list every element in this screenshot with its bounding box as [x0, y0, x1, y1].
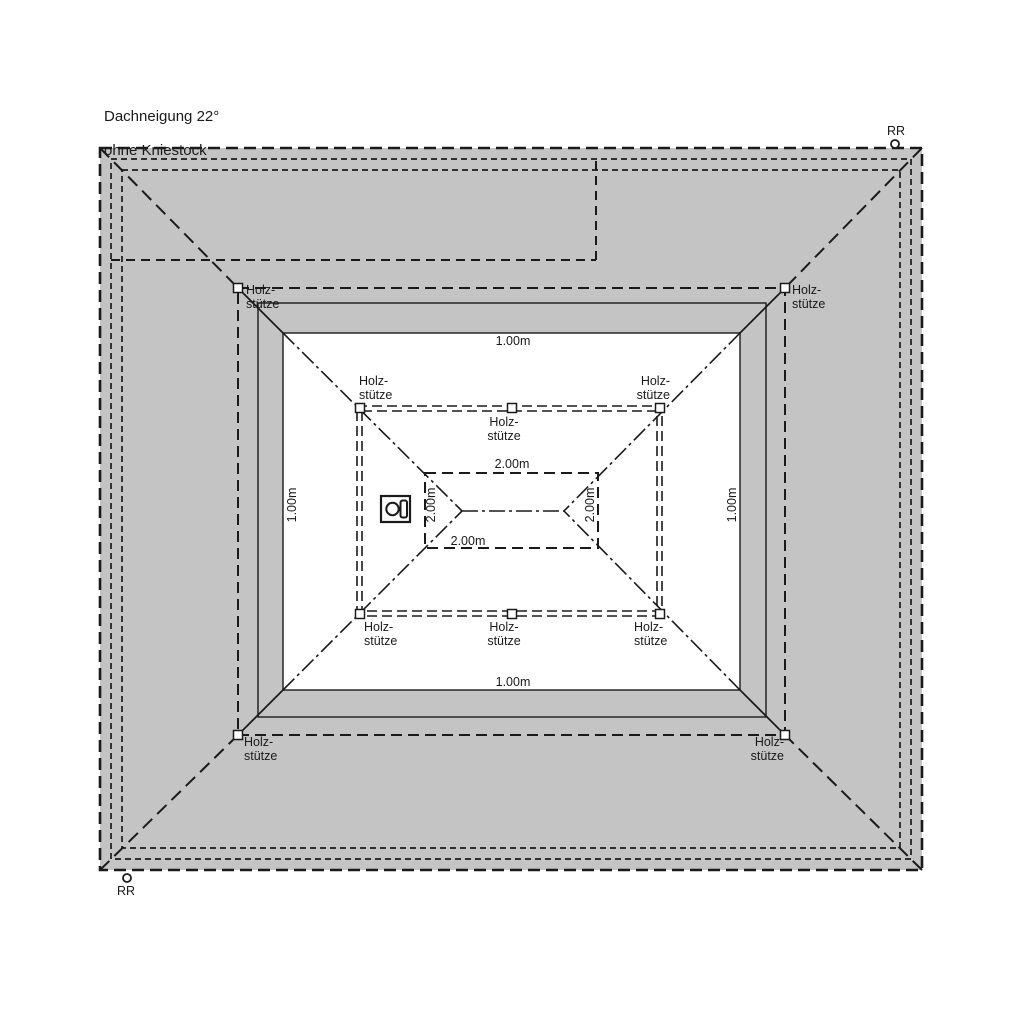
- downpipe-circle-icon: [123, 874, 131, 882]
- plan-title-line1: Dachneigung 22°: [104, 108, 219, 125]
- roof-plan: Dachneigung 22° ohne Kniestock RR RR Hol…: [0, 0, 1024, 1024]
- dim-inner-right: 2.00m: [583, 488, 597, 523]
- support-post-square: [508, 404, 517, 413]
- dim-inner-left: 2.00m: [424, 488, 438, 523]
- support-label-outer-top-left: Holz- stütze: [246, 284, 306, 311]
- chimney-icon: [381, 496, 410, 522]
- dim-inner-top: 2.00m: [495, 457, 530, 471]
- dim-inner-bottom: 2.00m: [451, 534, 486, 548]
- support-post-square: [656, 404, 665, 413]
- support-post-square: [234, 284, 243, 293]
- plan-title: Dachneigung 22° ohne Kniestock: [104, 108, 219, 159]
- downpipe-label-top-right: RR: [887, 124, 905, 138]
- support-post-square: [781, 284, 790, 293]
- support-label-mid-bottom-center: Holz- stütze: [474, 621, 534, 648]
- support-label-mid-top-right: Holz- stütze: [610, 375, 670, 402]
- downpipe-circle-icon: [891, 140, 899, 148]
- support-post-square: [356, 404, 365, 413]
- support-post-square: [234, 731, 243, 740]
- support-label-mid-bottom-left: Holz- stütze: [364, 621, 424, 648]
- dim-eave-top: 1.00m: [496, 334, 531, 348]
- support-label-outer-bottom-left: Holz- stütze: [244, 736, 304, 763]
- dim-eave-bottom: 1.00m: [496, 675, 531, 689]
- support-label-mid-top-left: Holz- stütze: [359, 375, 419, 402]
- support-label-outer-top-right: Holz- stütze: [792, 284, 852, 311]
- dim-eave-right: 1.00m: [725, 488, 739, 523]
- plan-title-line2: ohne Kniestock: [104, 142, 207, 159]
- support-label-mid-top-center: Holz- stütze: [474, 416, 534, 443]
- support-post-square: [356, 610, 365, 619]
- support-label-mid-bottom-right: Holz- stütze: [634, 621, 694, 648]
- downpipe-label-bottom-left: RR: [117, 884, 135, 898]
- support-label-outer-bottom-right: Holz- stütze: [724, 736, 784, 763]
- support-post-square: [508, 610, 517, 619]
- support-post-square: [656, 610, 665, 619]
- dim-eave-left: 1.00m: [285, 488, 299, 523]
